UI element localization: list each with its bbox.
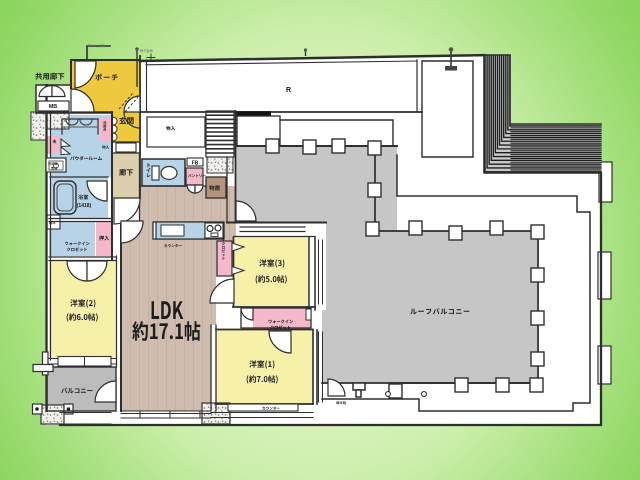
svg-text:MB: MB: [49, 104, 58, 110]
svg-text:(1418): (1418): [77, 203, 92, 209]
svg-text:FB: FB: [192, 161, 199, 167]
svg-text:R: R: [286, 87, 291, 94]
